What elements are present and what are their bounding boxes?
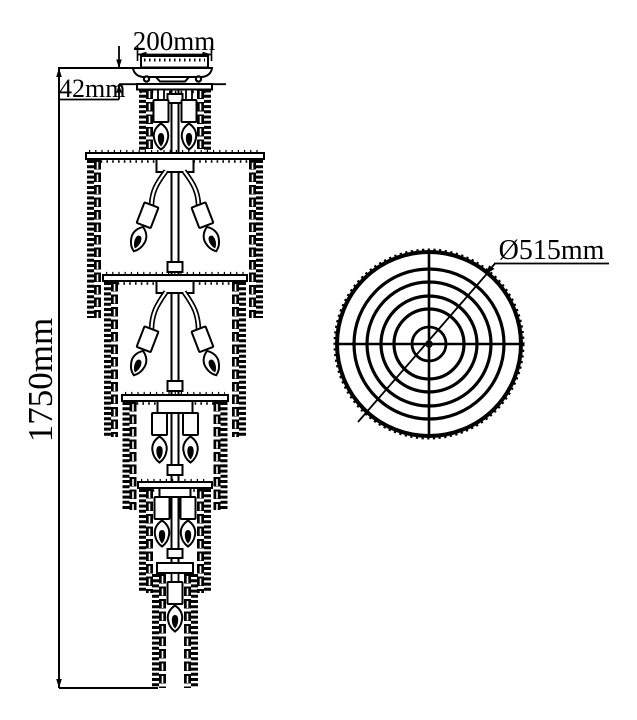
diameter-dimension-label: Ø515mm	[499, 235, 605, 266]
center-stem	[172, 293, 179, 395]
canopy-foot	[196, 76, 201, 81]
hub	[157, 281, 194, 293]
ceiling-canopy	[133, 56, 212, 82]
hub	[158, 401, 193, 413]
drawing-canvas: 1750mm 200mm 42mm	[0, 0, 637, 720]
tier-1	[137, 84, 212, 155]
canopy-width-dimension-label: 200mm	[133, 26, 216, 56]
tier-plate	[157, 563, 193, 573]
chandelier-dimension-drawing: 1750mm 200mm 42mm	[0, 0, 637, 720]
hub	[157, 159, 194, 172]
center-stem	[172, 172, 179, 275]
hub	[160, 488, 191, 497]
canopy-height-dimension-label: 42mm	[59, 74, 125, 103]
page-background	[0, 0, 637, 720]
canopy-foot	[144, 76, 149, 81]
tier-plate	[137, 84, 212, 90]
total-height-dimension-label: 1750mm	[21, 318, 60, 442]
